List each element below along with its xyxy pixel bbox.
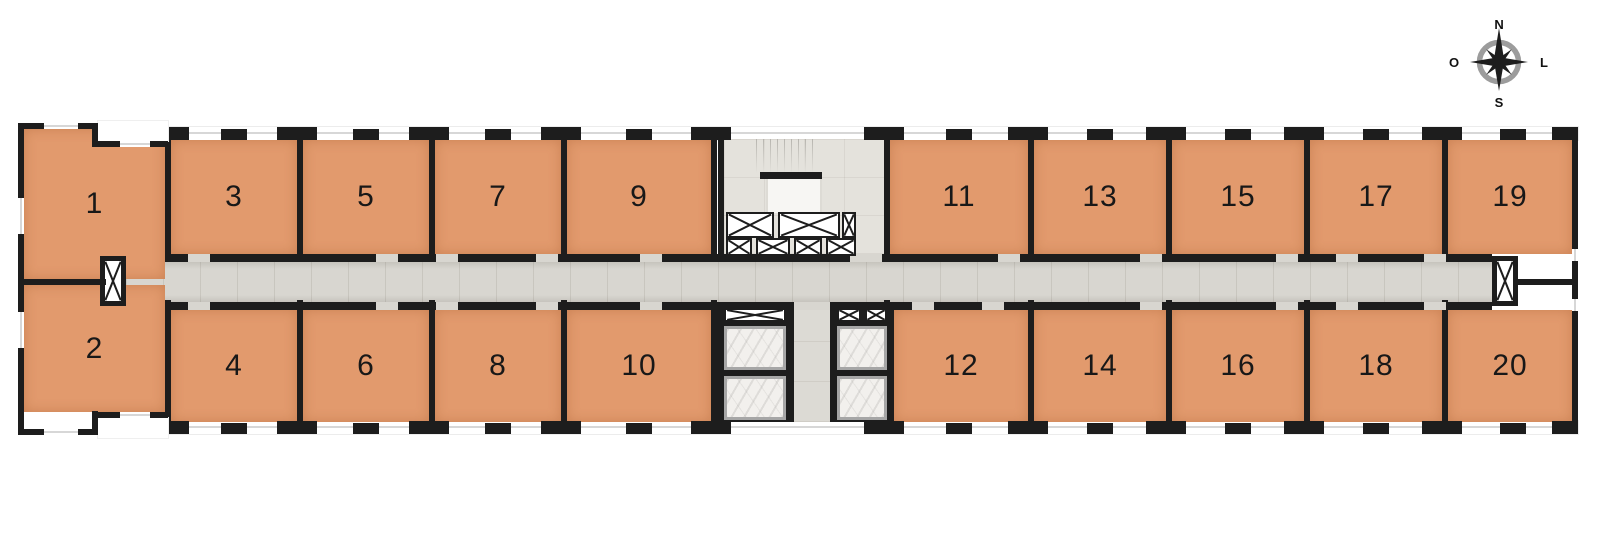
room-20-label: 20 <box>1492 349 1527 383</box>
window-mullion <box>485 423 511 434</box>
partition-wall <box>165 127 171 262</box>
facade-notch-top <box>98 121 168 141</box>
window-mullion <box>1363 423 1389 434</box>
door-opening <box>1424 302 1446 310</box>
divider-rooms-1-2 <box>18 279 106 285</box>
wall-cap <box>1284 127 1324 140</box>
window-south-unit2 <box>44 429 78 435</box>
window-west-2 <box>18 312 24 348</box>
elevator-car-3[interactable] <box>837 326 887 370</box>
wall-cap <box>409 127 449 140</box>
partition-wall <box>1304 300 1310 434</box>
elevator-car-1[interactable] <box>724 326 786 370</box>
room-6[interactable]: 6 <box>303 310 429 422</box>
elevator-car-2[interactable] <box>724 376 786 420</box>
compass-label-south: S <box>1495 95 1504 110</box>
door-opening <box>1276 302 1298 310</box>
window-mullion <box>1087 129 1113 140</box>
partition-wall <box>1166 300 1172 434</box>
room-4-label: 4 <box>225 349 243 383</box>
room-17-label: 17 <box>1358 180 1393 214</box>
window-notch-bottom <box>120 412 150 418</box>
door-opening <box>436 254 458 262</box>
room-2-label: 2 <box>86 332 104 366</box>
window-mullion <box>1363 129 1389 140</box>
room-3-label: 3 <box>225 180 243 214</box>
partition-wall <box>1166 127 1172 262</box>
room-8[interactable]: 8 <box>435 310 561 422</box>
shaft-x-box <box>778 212 840 238</box>
window-mullion <box>1087 423 1113 434</box>
compass-label-east: L <box>1540 55 1548 70</box>
room-20[interactable]: 20 <box>1448 310 1572 422</box>
room-16[interactable]: 16 <box>1172 310 1304 422</box>
wall-cap <box>864 127 904 140</box>
door-opening <box>536 254 558 262</box>
room-7-label: 7 <box>489 180 507 214</box>
door-opening <box>188 254 210 262</box>
room-2[interactable]: 2 <box>24 285 165 412</box>
partition-wall <box>1442 127 1448 262</box>
compass-label-north: N <box>1494 17 1503 32</box>
window-west-1 <box>18 198 24 234</box>
wall-cap <box>691 421 731 434</box>
room-5[interactable]: 5 <box>303 140 429 254</box>
wall-cap <box>691 127 731 140</box>
divider-rooms-19-20 <box>1518 279 1578 285</box>
room-3[interactable]: 3 <box>171 140 297 254</box>
compass-rose: N S O L <box>1439 2 1559 122</box>
wall-cap <box>409 421 449 434</box>
room-1[interactable]: 1 <box>24 129 165 279</box>
wall-cap <box>1146 127 1186 140</box>
room-1-label: 1 <box>86 187 104 221</box>
partition-wall <box>429 127 435 262</box>
shaft-x-box <box>726 238 752 256</box>
door-opening <box>1140 302 1162 310</box>
door-opening <box>982 302 1004 310</box>
duct-x-box <box>724 308 786 322</box>
partition-wall <box>1304 127 1310 262</box>
window-mullion <box>1500 423 1526 434</box>
door-opening <box>376 254 398 262</box>
room-12[interactable]: 12 <box>894 310 1028 422</box>
partition-wall <box>1028 300 1034 434</box>
room-13-label: 13 <box>1082 180 1117 214</box>
room-9[interactable]: 9 <box>567 140 711 254</box>
room-15-label: 15 <box>1220 180 1255 214</box>
partition-wall <box>297 127 303 262</box>
room-13[interactable]: 13 <box>1034 140 1166 254</box>
shaft-x-box <box>842 212 856 238</box>
window-mullion <box>1225 423 1251 434</box>
room-4[interactable]: 4 <box>171 310 297 422</box>
room-7[interactable]: 7 <box>435 140 561 254</box>
room-14[interactable]: 14 <box>1034 310 1166 422</box>
room-17[interactable]: 17 <box>1310 140 1442 254</box>
duct-x-box <box>865 308 887 322</box>
room-18[interactable]: 18 <box>1310 310 1442 422</box>
partition-wall <box>561 127 567 262</box>
partition-wall <box>1028 127 1034 262</box>
room-11-label: 11 <box>942 180 975 214</box>
door-opening <box>640 254 662 262</box>
window-mullion <box>221 423 247 434</box>
window-mullion <box>1500 129 1526 140</box>
room-18-label: 18 <box>1358 349 1393 383</box>
wall-cap <box>1422 127 1462 140</box>
compass-label-west: O <box>1449 55 1459 70</box>
door-opening <box>376 302 398 310</box>
elevator-car-4[interactable] <box>837 376 887 420</box>
room-5-label: 5 <box>357 180 375 214</box>
wall-cap <box>277 127 317 140</box>
facade-notch-bottom <box>98 418 168 438</box>
window-mullion <box>353 423 379 434</box>
duct-x-box <box>837 308 861 322</box>
room-10-label: 10 <box>621 349 656 383</box>
wall-cap <box>1146 421 1186 434</box>
partition-wall <box>429 300 435 434</box>
window-north-unit1 <box>44 123 78 129</box>
window-east-2 <box>1572 299 1578 311</box>
room-14-label: 14 <box>1082 349 1117 383</box>
wall-cap <box>864 421 904 434</box>
door-opening <box>1336 254 1358 262</box>
room-19-label: 19 <box>1492 180 1527 214</box>
window-mullion <box>353 129 379 140</box>
partition-wall <box>711 127 717 262</box>
floor-plan: 1234567891011121314151617181920 N S <box>0 0 1600 560</box>
room-12-label: 12 <box>943 349 978 383</box>
wall-cap <box>1284 421 1324 434</box>
door-opening <box>640 302 662 310</box>
shaft-x-box <box>826 238 856 256</box>
window-mullion <box>946 129 972 140</box>
room-8-label: 8 <box>489 349 507 383</box>
wall-cap <box>541 127 581 140</box>
window-mullion <box>485 129 511 140</box>
door-opening <box>1276 254 1298 262</box>
partition-wall <box>561 300 567 434</box>
window-mullion <box>1225 129 1251 140</box>
partition-wall <box>1442 300 1448 434</box>
door-opening <box>436 302 458 310</box>
window-mullion <box>626 129 652 140</box>
room-10[interactable]: 10 <box>567 310 711 422</box>
wall-cap <box>1008 421 1048 434</box>
door-opening <box>794 302 830 310</box>
door-opening <box>1140 254 1162 262</box>
wall-cap <box>1008 127 1048 140</box>
door-opening <box>536 302 558 310</box>
door-opening <box>1424 254 1446 262</box>
shaft-x-box <box>794 238 822 256</box>
shaft-x-box <box>726 212 774 238</box>
partition-wall <box>884 127 890 262</box>
shaft-x-box <box>756 238 790 256</box>
room-16-label: 16 <box>1220 349 1255 383</box>
window-mullion <box>221 129 247 140</box>
door-opening <box>998 254 1020 262</box>
door-opening <box>912 302 934 310</box>
partition-wall <box>297 300 303 434</box>
partition-wall <box>711 300 717 434</box>
room-9-label: 9 <box>630 180 648 214</box>
wall-cap <box>1422 421 1462 434</box>
door-opening <box>188 302 210 310</box>
room-15[interactable]: 15 <box>1172 140 1304 254</box>
window-mullion <box>626 423 652 434</box>
window-notch-top <box>120 141 150 147</box>
room-19[interactable]: 19 <box>1448 140 1572 254</box>
door-opening <box>1336 302 1358 310</box>
window-east-1 <box>1572 249 1578 261</box>
wall-cap <box>541 421 581 434</box>
room-6-label: 6 <box>357 349 375 383</box>
wall-cap <box>277 421 317 434</box>
corridor-end-window <box>1492 256 1518 306</box>
window-mullion <box>946 423 972 434</box>
outer-wall-east <box>1572 127 1578 434</box>
room-11[interactable]: 11 <box>890 140 1028 254</box>
